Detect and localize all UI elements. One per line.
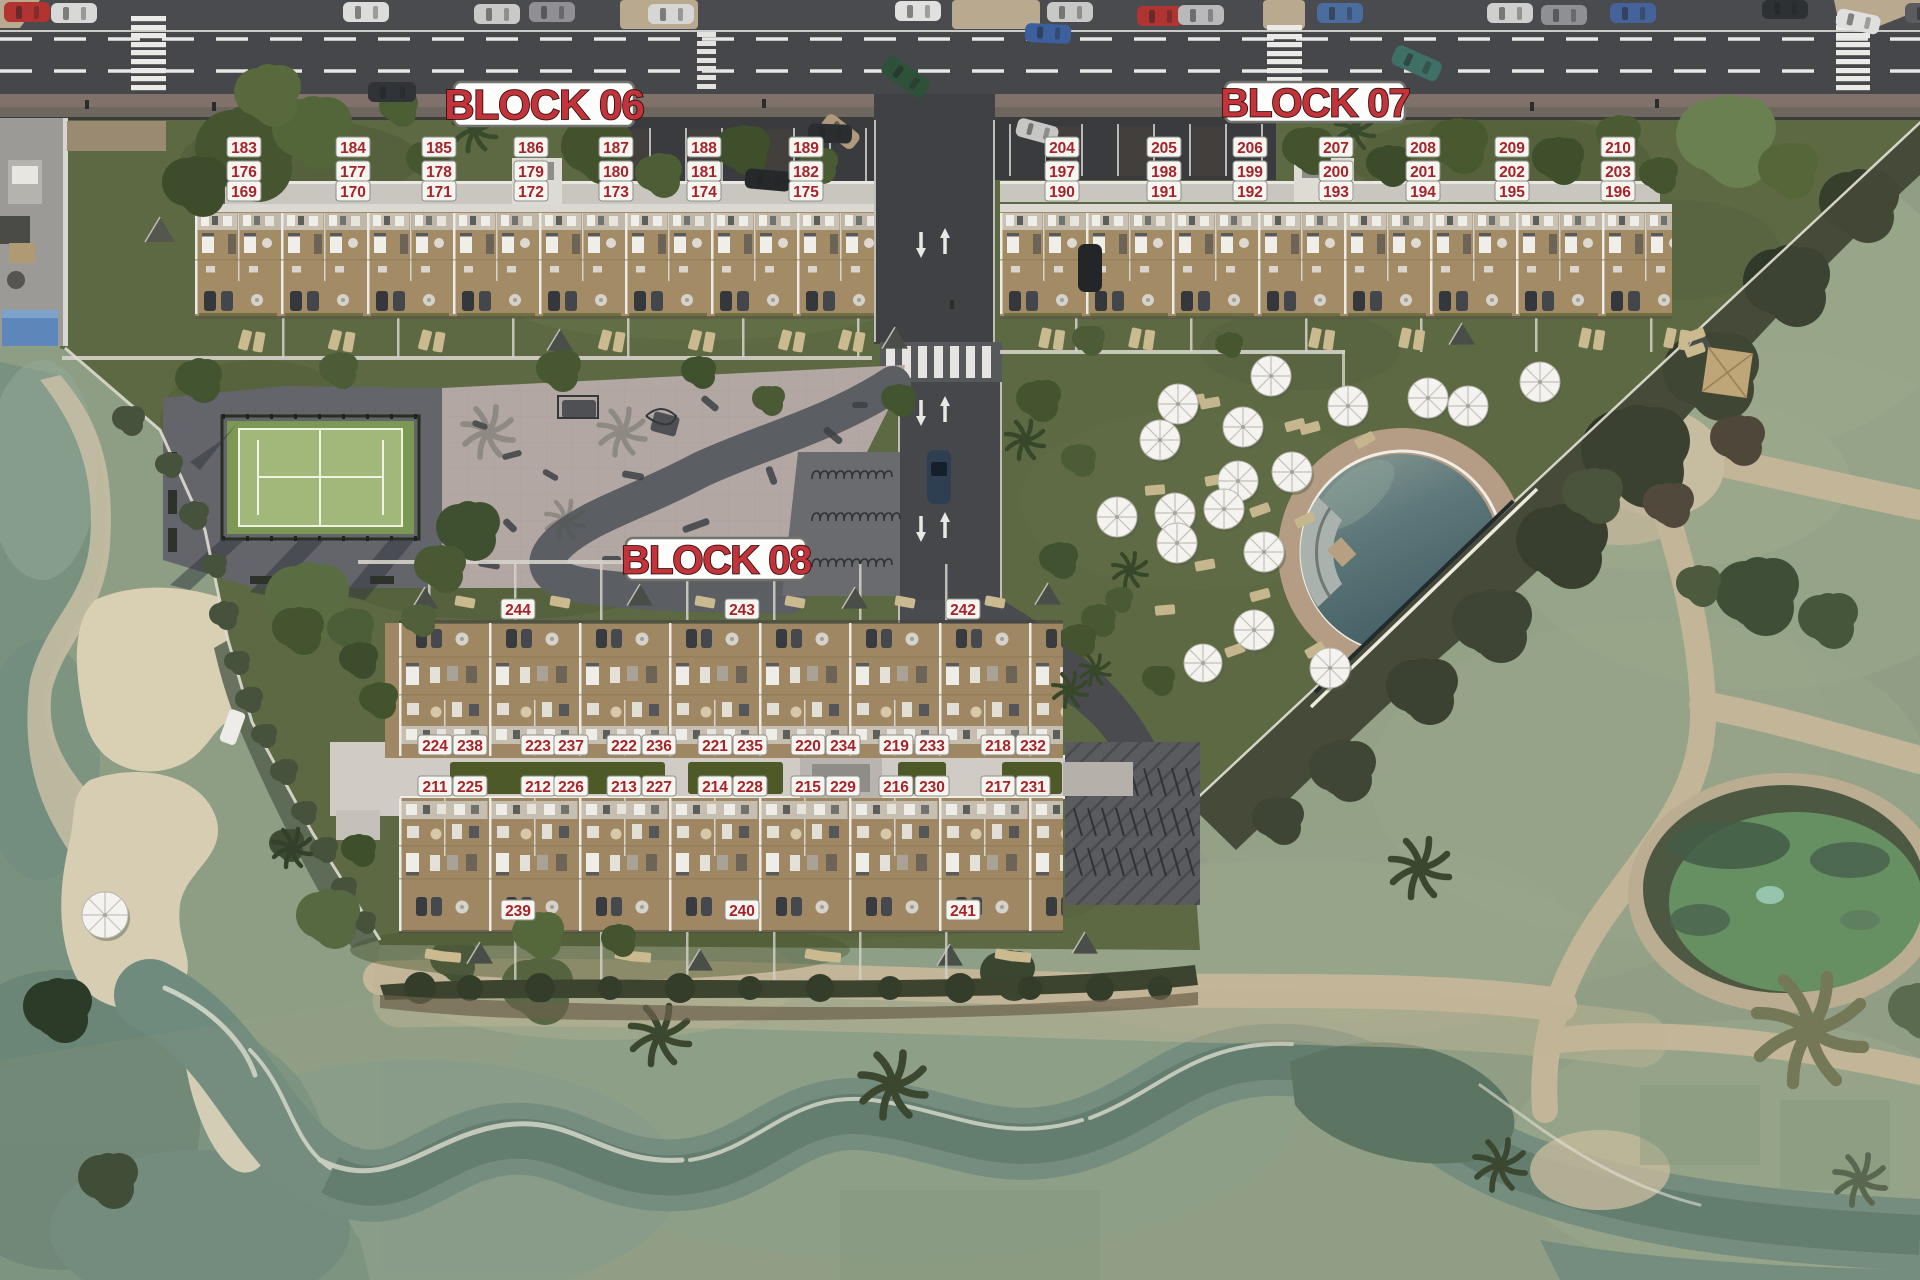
svg-text:196: 196 <box>1605 184 1631 201</box>
svg-text:212: 212 <box>525 779 551 796</box>
svg-text:203: 203 <box>1605 164 1631 181</box>
svg-text:192: 192 <box>1237 184 1263 201</box>
svg-text:205: 205 <box>1151 140 1177 157</box>
svg-text:219: 219 <box>883 738 909 755</box>
svg-text:243: 243 <box>729 602 755 619</box>
svg-text:197: 197 <box>1049 164 1075 181</box>
svg-text:BLOCK 06: BLOCK 06 <box>444 81 644 128</box>
svg-text:242: 242 <box>950 602 976 619</box>
svg-text:206: 206 <box>1237 140 1263 157</box>
svg-text:194: 194 <box>1410 184 1436 201</box>
svg-text:209: 209 <box>1499 140 1525 157</box>
svg-text:193: 193 <box>1323 184 1349 201</box>
svg-text:239: 239 <box>505 903 531 920</box>
svg-text:199: 199 <box>1237 164 1263 181</box>
svg-text:228: 228 <box>737 779 763 796</box>
svg-text:195: 195 <box>1499 184 1525 201</box>
svg-text:213: 213 <box>611 779 637 796</box>
svg-text:171: 171 <box>426 184 452 201</box>
svg-text:204: 204 <box>1049 140 1075 157</box>
svg-text:201: 201 <box>1410 164 1436 181</box>
svg-text:BLOCK 07: BLOCK 07 <box>1220 81 1410 125</box>
svg-text:227: 227 <box>646 779 672 796</box>
svg-text:214: 214 <box>702 779 728 796</box>
svg-text:187: 187 <box>603 140 629 157</box>
svg-text:191: 191 <box>1151 184 1177 201</box>
svg-text:244: 244 <box>505 602 531 619</box>
svg-text:215: 215 <box>795 779 821 796</box>
svg-text:224: 224 <box>422 738 448 755</box>
svg-text:173: 173 <box>603 184 629 201</box>
svg-text:234: 234 <box>830 738 856 755</box>
svg-text:176: 176 <box>231 164 257 181</box>
svg-text:174: 174 <box>691 184 717 201</box>
svg-text:231: 231 <box>1020 779 1046 796</box>
svg-text:188: 188 <box>691 140 717 157</box>
svg-text:236: 236 <box>646 738 672 755</box>
svg-text:202: 202 <box>1499 164 1525 181</box>
svg-text:229: 229 <box>830 779 856 796</box>
svg-text:240: 240 <box>729 903 755 920</box>
svg-text:230: 230 <box>919 779 945 796</box>
svg-text:235: 235 <box>737 738 763 755</box>
svg-text:175: 175 <box>793 184 819 201</box>
svg-text:237: 237 <box>558 738 584 755</box>
svg-text:238: 238 <box>457 738 483 755</box>
svg-text:178: 178 <box>426 164 452 181</box>
svg-text:181: 181 <box>691 164 717 181</box>
svg-text:170: 170 <box>340 184 366 201</box>
svg-text:232: 232 <box>1020 738 1046 755</box>
svg-text:226: 226 <box>558 779 584 796</box>
svg-text:172: 172 <box>518 184 544 201</box>
svg-text:183: 183 <box>231 140 257 157</box>
svg-text:218: 218 <box>985 738 1011 755</box>
svg-text:BLOCK 08: BLOCK 08 <box>621 538 812 582</box>
svg-text:198: 198 <box>1151 164 1177 181</box>
svg-text:217: 217 <box>985 779 1011 796</box>
svg-text:210: 210 <box>1605 140 1631 157</box>
svg-text:189: 189 <box>793 140 819 157</box>
svg-text:190: 190 <box>1049 184 1075 201</box>
svg-text:186: 186 <box>518 140 544 157</box>
svg-text:241: 241 <box>950 903 976 920</box>
svg-text:169: 169 <box>231 184 257 201</box>
svg-text:225: 225 <box>457 779 483 796</box>
svg-text:184: 184 <box>340 140 366 157</box>
svg-text:208: 208 <box>1410 140 1436 157</box>
svg-text:233: 233 <box>919 738 945 755</box>
svg-text:182: 182 <box>793 164 819 181</box>
svg-text:180: 180 <box>603 164 629 181</box>
svg-text:221: 221 <box>702 738 728 755</box>
svg-text:222: 222 <box>611 738 637 755</box>
svg-text:220: 220 <box>795 738 821 755</box>
svg-text:216: 216 <box>883 779 909 796</box>
svg-text:177: 177 <box>340 164 366 181</box>
svg-text:207: 207 <box>1323 140 1349 157</box>
svg-text:223: 223 <box>525 738 551 755</box>
svg-text:200: 200 <box>1323 164 1349 181</box>
svg-text:211: 211 <box>422 779 447 796</box>
svg-text:179: 179 <box>518 164 544 181</box>
svg-text:185: 185 <box>426 140 452 157</box>
